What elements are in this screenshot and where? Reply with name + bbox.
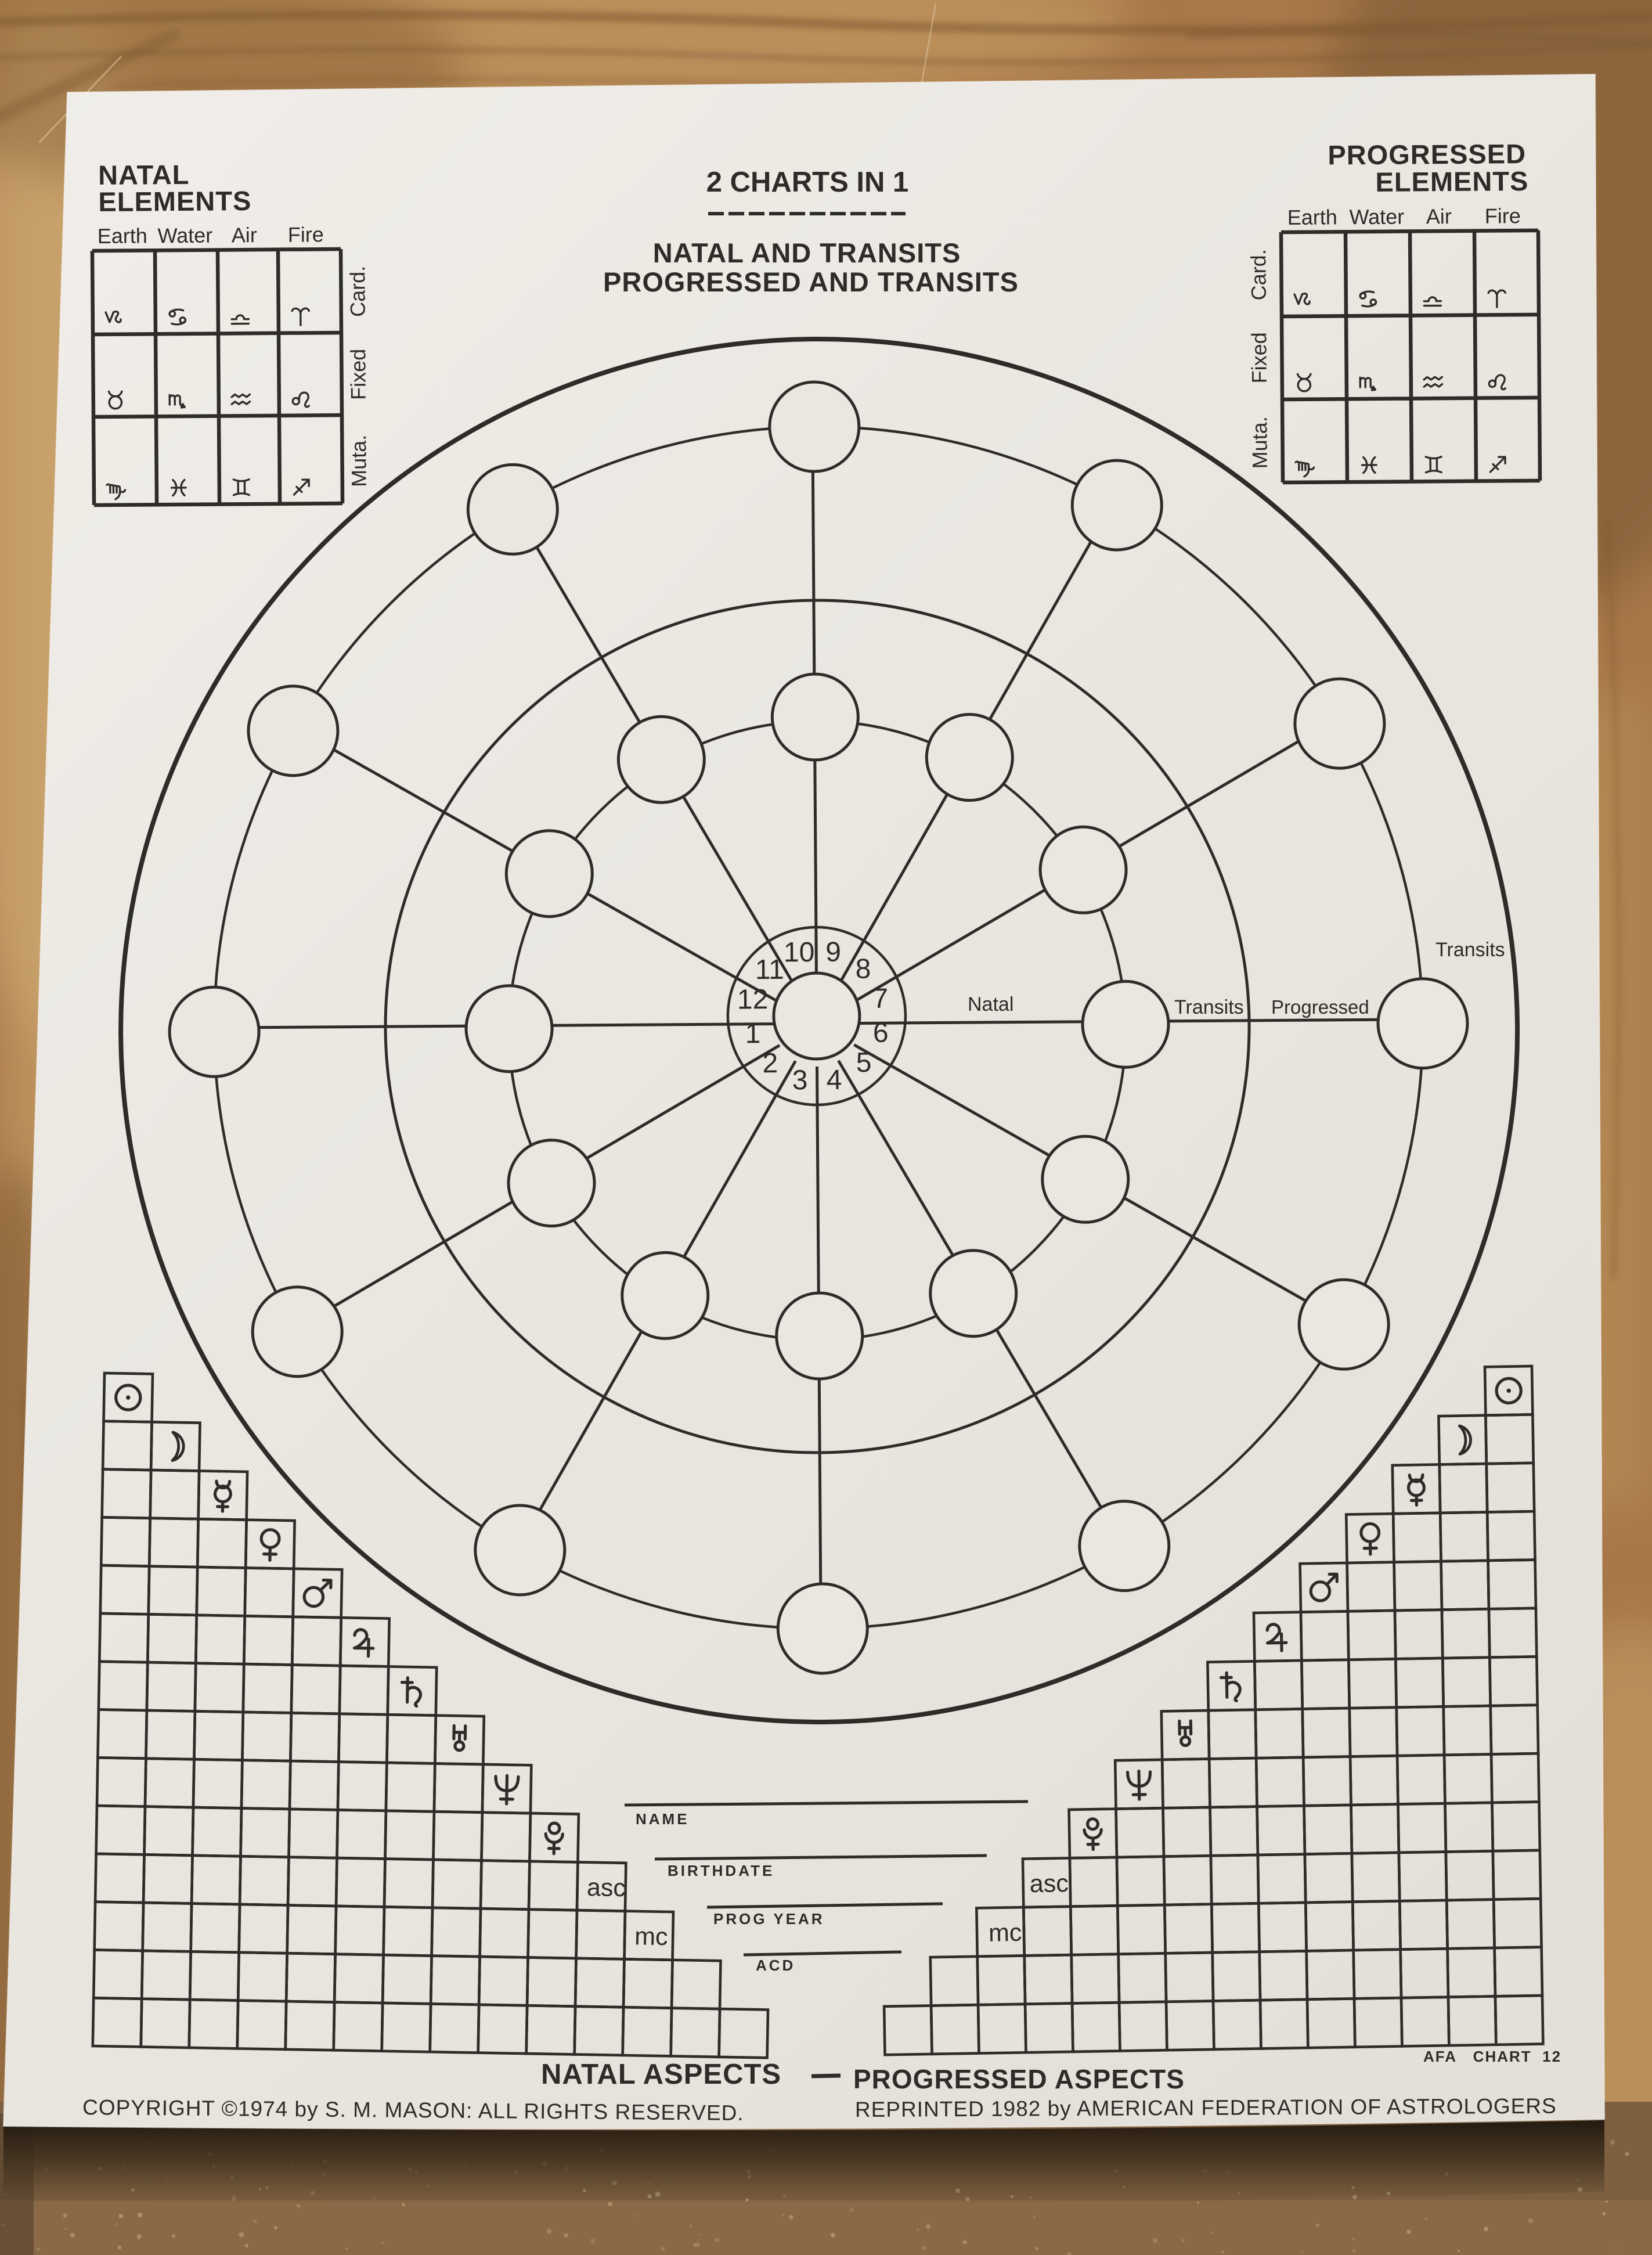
svg-text:Card.: Card.: [1246, 249, 1271, 300]
svg-text:5: 5: [856, 1047, 872, 1078]
svg-text:mc: mc: [989, 1919, 1022, 1947]
svg-text:6: 6: [873, 1018, 889, 1049]
svg-text:8: 8: [855, 954, 871, 985]
svg-text:Muta.: Muta.: [347, 435, 371, 487]
svg-text:PROGRESSED AND TRANSITS: PROGRESSED AND TRANSITS: [603, 266, 1019, 297]
svg-text:10: 10: [784, 937, 815, 968]
svg-text:ELEMENTS: ELEMENTS: [98, 185, 251, 217]
svg-text:1: 1: [745, 1018, 760, 1049]
svg-text:Transits: Transits: [1435, 939, 1505, 961]
svg-text:REPRINTED 1982 by AMERICAN FED: REPRINTED 1982 by AMERICAN FEDERATION OF…: [855, 2094, 1557, 2121]
svg-text:ELEMENTS: ELEMENTS: [1375, 165, 1528, 197]
svg-text:BIRTHDATE: BIRTHDATE: [668, 1862, 774, 1879]
svg-text:Air: Air: [232, 223, 257, 247]
svg-text:ACD: ACD: [756, 1957, 795, 1974]
svg-text:PROG YEAR: PROG YEAR: [713, 1910, 825, 1928]
svg-text:Progressed: Progressed: [1271, 996, 1369, 1018]
svg-text:3: 3: [792, 1065, 808, 1096]
svg-text:Fire: Fire: [1485, 204, 1521, 228]
svg-text:NATAL ASPECTS: NATAL ASPECTS: [541, 2059, 781, 2090]
svg-text:2: 2: [762, 1048, 778, 1079]
svg-text:Muta.: Muta.: [1247, 416, 1272, 469]
svg-text:NAME: NAME: [636, 1810, 690, 1828]
svg-text:asc: asc: [1029, 1869, 1069, 1898]
svg-text:Earth: Earth: [1287, 205, 1337, 229]
svg-text:11: 11: [755, 954, 784, 985]
svg-text:Water: Water: [157, 224, 212, 248]
svg-text:asc: asc: [587, 1874, 626, 1902]
svg-text:AFA CHART 12: AFA CHART 12: [1423, 2048, 1561, 2065]
svg-text:Transits: Transits: [1174, 996, 1244, 1018]
svg-text:Natal: Natal: [968, 993, 1013, 1015]
svg-text:Fixed: Fixed: [1247, 332, 1271, 383]
svg-text:12: 12: [737, 984, 769, 1015]
svg-text:4: 4: [827, 1065, 842, 1096]
svg-text:Earth: Earth: [98, 224, 147, 248]
svg-text:9: 9: [825, 937, 841, 968]
svg-text:Air: Air: [1426, 204, 1452, 228]
svg-text:Water: Water: [1349, 205, 1404, 229]
svg-text:Fire: Fire: [288, 222, 324, 246]
svg-text:2 CHARTS IN 1: 2 CHARTS IN 1: [706, 167, 909, 198]
svg-text:Fixed: Fixed: [346, 349, 370, 400]
svg-text:NATAL AND TRANSITS: NATAL AND TRANSITS: [653, 237, 961, 268]
svg-text:PROGRESSED ASPECTS: PROGRESSED ASPECTS: [853, 2064, 1185, 2094]
svg-text:7: 7: [872, 984, 888, 1014]
svg-text:Card.: Card.: [345, 266, 370, 317]
svg-text:mc: mc: [634, 1922, 668, 1951]
